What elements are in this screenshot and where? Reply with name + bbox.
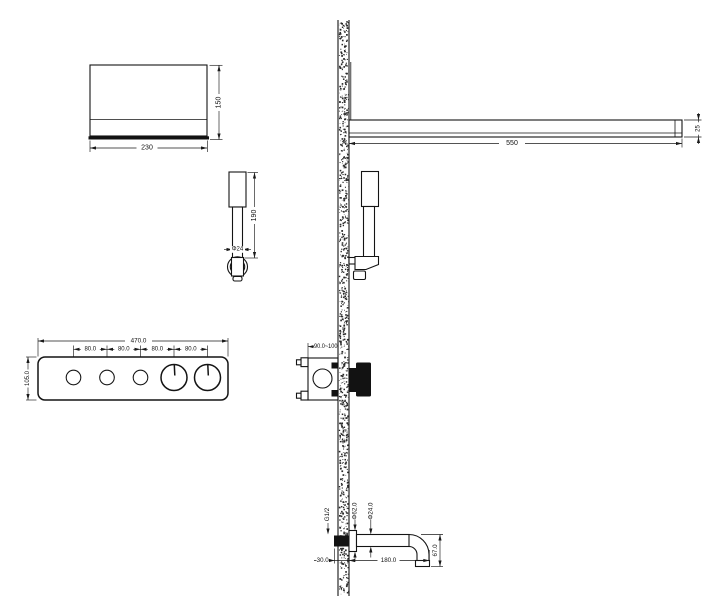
view-overhead-shower-front: 230 150 xyxy=(89,65,223,152)
knob-body xyxy=(356,363,371,397)
hand-shower-grip xyxy=(229,172,246,207)
wall-section xyxy=(338,20,351,596)
spout-elbow-inner xyxy=(409,547,417,561)
shower-arm-bar xyxy=(349,120,682,137)
hand-shower-grip-side xyxy=(362,172,379,207)
dim-arrow xyxy=(369,547,372,553)
dim-arrow xyxy=(174,348,180,351)
spout-flange xyxy=(349,531,357,552)
dim-overhead-width: 230 xyxy=(141,145,153,152)
dim-arrow xyxy=(202,348,208,351)
dim-arrow xyxy=(26,357,29,363)
spray-head-side xyxy=(355,257,379,270)
dim-arrow xyxy=(353,552,356,558)
dim-arrow xyxy=(308,345,314,348)
dim-arrow xyxy=(107,348,113,351)
dim-spout-thread: G1/2 xyxy=(324,507,331,521)
dim-spout-drop: 67.0 xyxy=(432,544,439,557)
view-hand-shower-front: 190 Φ24 xyxy=(224,172,258,281)
technical-drawing: 230 150 190 Φ24 xyxy=(0,0,717,600)
hand-shower-handle-side xyxy=(364,207,375,258)
dim-arrow xyxy=(168,348,174,351)
dim-spout-wall-depth: 30.0 xyxy=(317,557,330,564)
knob-2-indicator xyxy=(208,365,209,376)
dim-panel-spacing-4: 80.0 xyxy=(185,346,197,352)
panel-button-3 xyxy=(133,370,148,385)
dim-arrow xyxy=(253,173,256,179)
shower-head-lip xyxy=(89,136,210,139)
valve-mount-pad-top xyxy=(332,363,339,369)
dim-panel-spacing-3: 80.0 xyxy=(151,346,163,352)
panel-button-1 xyxy=(66,370,81,385)
wall-hatch xyxy=(339,21,349,594)
spray-head-tip xyxy=(233,277,242,282)
dim-arrow xyxy=(201,146,207,149)
dim-arrow xyxy=(74,348,80,351)
dim-arrow xyxy=(141,348,147,351)
dim-valve-depth: 90.0~100 xyxy=(314,344,338,350)
dim-panel-width: 470.0 xyxy=(131,338,147,345)
dim-hand-diameter: Φ24 xyxy=(232,247,244,253)
view-hand-shower-side xyxy=(349,172,379,280)
dim-panel-spacing-1: 80.0 xyxy=(84,346,96,352)
dim-arm-thickness: 25 xyxy=(695,125,701,132)
dim-arrow xyxy=(101,348,107,351)
dim-arrow xyxy=(217,65,220,71)
spray-tip-side xyxy=(354,271,366,280)
drawing-page: 230 150 190 Φ24 xyxy=(0,0,717,600)
spout-tube xyxy=(357,535,410,547)
dim-arrow xyxy=(438,535,441,541)
panel-button-2 xyxy=(100,370,115,385)
valve-screw-top-head xyxy=(297,360,302,365)
dim-overhead-height: 150 xyxy=(216,97,223,109)
dim-arrow xyxy=(349,559,355,562)
dim-arrow xyxy=(676,142,682,145)
valve-mount-pad-bottom xyxy=(332,390,339,397)
dim-arrow xyxy=(438,561,441,567)
dim-arrow xyxy=(253,252,256,258)
dim-spout-reach: 180.0 xyxy=(381,557,397,564)
view-shower-arm-side: 550 25 xyxy=(349,113,702,148)
dim-arrow xyxy=(90,146,96,149)
valve-screw-top-nut xyxy=(301,358,308,367)
dim-arrow xyxy=(135,348,141,351)
view-control-panel-front: 470.0 80.0 80.0 80.0 80.0 105.0 xyxy=(24,337,228,400)
dim-arrow xyxy=(697,137,700,143)
dim-panel-height: 105.0 xyxy=(25,370,31,386)
spout-inlet-connector xyxy=(334,536,349,547)
dim-arrow xyxy=(369,529,372,535)
leader-arrow xyxy=(326,529,329,535)
dim-arrow xyxy=(697,114,700,120)
dim-hand-length: 190 xyxy=(251,210,258,222)
dim-spout-flange-dia: Φ62.0 xyxy=(352,502,359,520)
dim-arrow xyxy=(26,394,29,400)
spout-aerator-tip xyxy=(416,561,430,567)
dim-spout-pipe-dia: Φ24.0 xyxy=(367,502,374,520)
dim-arrow xyxy=(38,339,44,342)
dim-arrow xyxy=(222,339,228,342)
dim-arrow xyxy=(217,134,220,140)
dim-arrow xyxy=(353,525,356,531)
view-mixer-valve-body: 90.0~100 xyxy=(297,343,339,400)
dim-arrow xyxy=(329,559,335,562)
valve-screw-bottom-head xyxy=(297,393,302,398)
knob-1-indicator xyxy=(174,365,175,376)
spray-head-body xyxy=(232,258,244,277)
shower-head-body xyxy=(90,65,207,136)
view-spout-side: G1/2 Φ62.0 Φ24.0 30.0 180.0 67.0 xyxy=(314,502,443,567)
valve-screw-bottom-nut xyxy=(301,391,308,400)
dim-panel-spacing-2: 80.0 xyxy=(118,346,130,352)
dim-arm-length: 550 xyxy=(506,140,518,147)
view-mixer-valve-knob xyxy=(349,363,371,397)
knob-flange xyxy=(349,368,356,392)
dim-arrow xyxy=(349,142,355,145)
